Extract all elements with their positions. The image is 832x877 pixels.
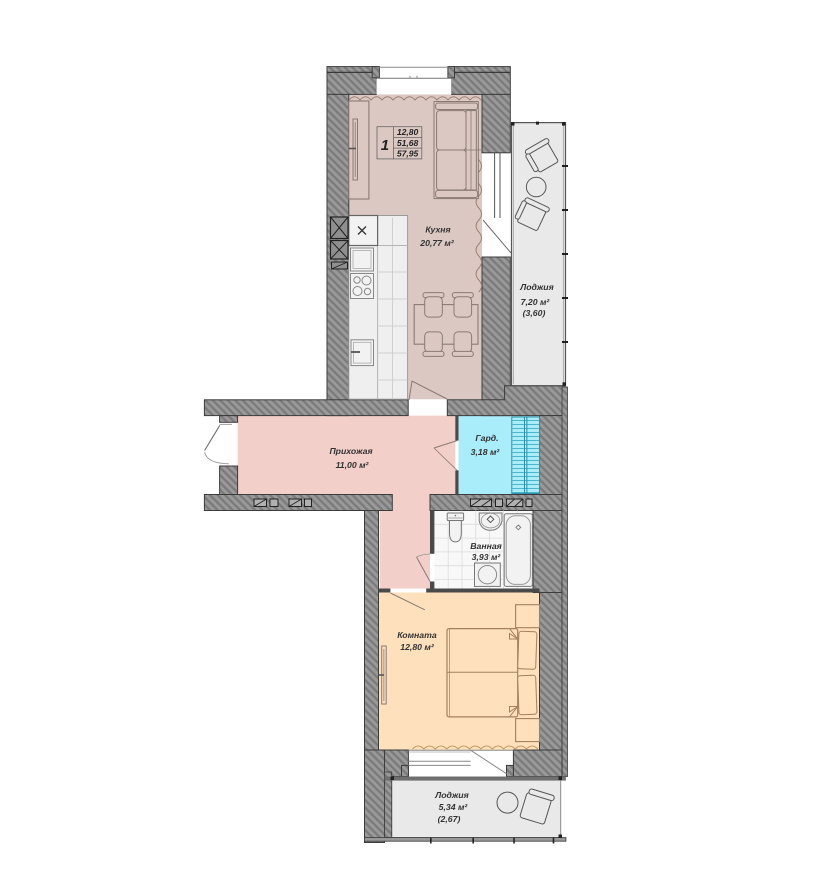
svg-text:Комната: Комната <box>397 630 437 640</box>
svg-text:20,77 м²: 20,77 м² <box>419 238 455 248</box>
svg-text:Гард.: Гард. <box>475 433 498 443</box>
svg-text:Лоджия: Лоджия <box>434 790 468 800</box>
svg-text:Прихожая: Прихожая <box>329 446 372 456</box>
svg-text:(3,60): (3,60) <box>523 308 546 318</box>
svg-text:5,34 м²: 5,34 м² <box>439 802 469 812</box>
svg-text:12,80: 12,80 <box>397 127 419 137</box>
svg-text:1: 1 <box>381 137 389 154</box>
svg-text:Ванная: Ванная <box>470 541 502 551</box>
svg-text:12,80 м²: 12,80 м² <box>400 642 435 652</box>
svg-text:57,95: 57,95 <box>397 149 419 159</box>
svg-text:51,68: 51,68 <box>397 138 419 148</box>
svg-text:Лоджия: Лоджия <box>519 282 553 292</box>
svg-text:7,20 м²: 7,20 м² <box>521 297 551 307</box>
svg-text:Кухня: Кухня <box>425 225 450 235</box>
svg-text:3,18 м²: 3,18 м² <box>471 447 501 457</box>
svg-text:(2,67): (2,67) <box>438 814 461 824</box>
svg-text:11,00 м²: 11,00 м² <box>336 460 370 470</box>
svg-text:3,93 м²: 3,93 м² <box>472 552 502 562</box>
